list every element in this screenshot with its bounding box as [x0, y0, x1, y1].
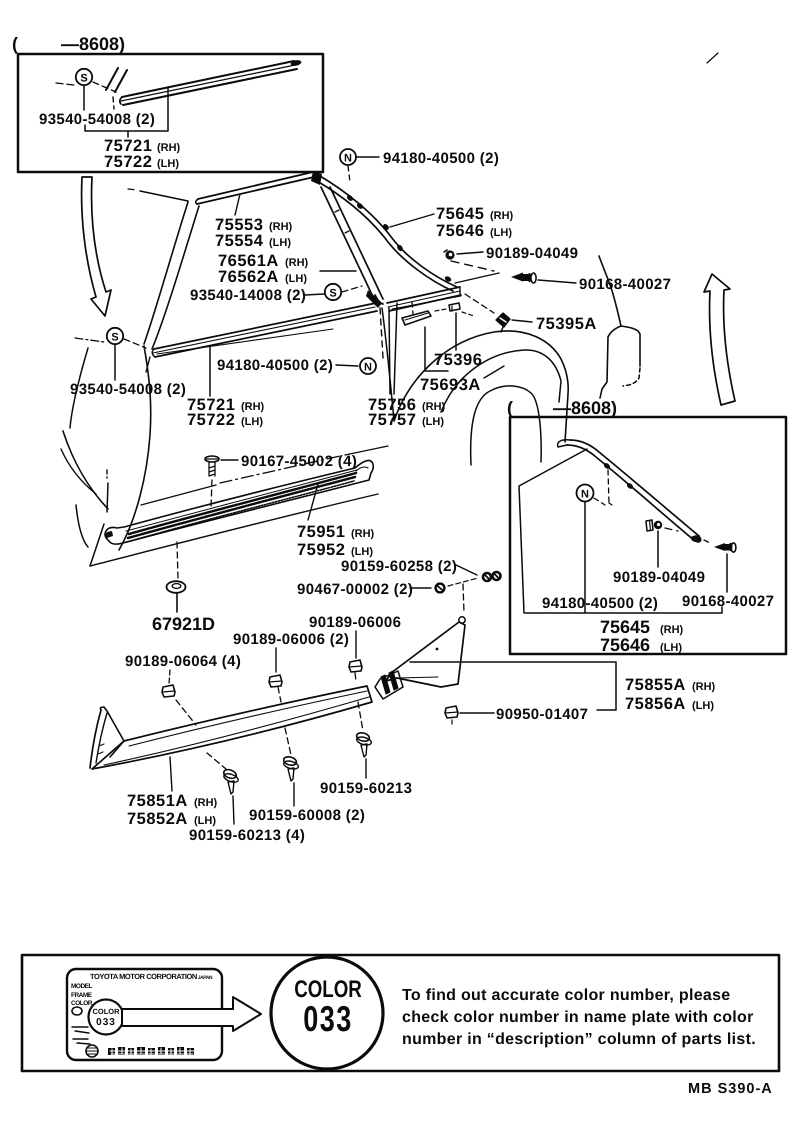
svg-text:(RH): (RH) — [660, 624, 684, 636]
svg-text:(LH): (LH) — [660, 642, 682, 654]
svg-text:(LH): (LH) — [692, 700, 714, 712]
svg-text:033: 033 — [303, 998, 353, 1039]
svg-text:75855A: 75855A — [625, 676, 686, 694]
svg-text:94180-40500 (2): 94180-40500 (2) — [542, 595, 658, 612]
svg-text:S: S — [80, 73, 87, 85]
svg-text:N: N — [344, 153, 352, 165]
svg-text:(RH): (RH) — [241, 401, 265, 413]
svg-text:(LH): (LH) — [490, 227, 512, 239]
svg-text:(RH): (RH) — [285, 257, 309, 269]
svg-text:90467-00002 (2): 90467-00002 (2) — [297, 581, 413, 598]
svg-text:N: N — [364, 362, 372, 374]
svg-text:(RH): (RH) — [157, 142, 181, 154]
svg-text:90167-45002 (4): 90167-45002 (4) — [241, 453, 357, 470]
svg-text:COLOR: COLOR — [71, 1000, 93, 1007]
svg-text:(RH): (RH) — [490, 210, 514, 222]
svg-text:S: S — [111, 332, 118, 344]
svg-text:MB S390-A: MB S390-A — [688, 1081, 773, 1097]
svg-text:75645: 75645 — [600, 617, 650, 637]
svg-text:93540-54008 (2): 93540-54008 (2) — [70, 381, 186, 398]
svg-text:(RH): (RH) — [194, 797, 218, 809]
svg-text:90159-60213 (4): 90159-60213 (4) — [189, 827, 305, 844]
svg-text:S: S — [329, 288, 336, 300]
svg-text:75851A: 75851A — [127, 792, 188, 810]
svg-text:75646: 75646 — [436, 222, 484, 240]
svg-text:90168-40027: 90168-40027 — [579, 276, 671, 293]
svg-text:90159-60258 (2): 90159-60258 (2) — [341, 558, 457, 575]
svg-text:75722: 75722 — [187, 411, 235, 429]
svg-text:(RH): (RH) — [269, 221, 293, 233]
svg-text:75856A: 75856A — [625, 695, 686, 713]
svg-text:75693A: 75693A — [420, 376, 481, 394]
svg-text:94180-40500 (2): 94180-40500 (2) — [383, 150, 499, 167]
svg-text:033: 033 — [96, 1017, 116, 1028]
svg-text:75951: 75951 — [297, 523, 345, 541]
svg-text:—8608): —8608) — [61, 34, 125, 54]
svg-text:75852A: 75852A — [127, 810, 188, 828]
svg-text:number in “description” column: number in “description” column of parts … — [402, 1031, 756, 1048]
svg-text:(LH): (LH) — [422, 416, 444, 428]
svg-text:75757: 75757 — [368, 411, 416, 429]
svg-text:(RH): (RH) — [351, 528, 375, 540]
svg-text:(LH): (LH) — [157, 158, 179, 170]
svg-text:N: N — [581, 489, 589, 501]
svg-text:(LH): (LH) — [194, 815, 216, 827]
svg-text:90189-04049: 90189-04049 — [613, 569, 705, 586]
svg-text:90159-60008 (2): 90159-60008 (2) — [249, 807, 365, 824]
svg-text:90159-60213: 90159-60213 — [320, 780, 412, 797]
svg-text:93540-54008 (2): 93540-54008 (2) — [39, 111, 155, 128]
svg-text:FRAME: FRAME — [71, 992, 93, 999]
svg-text:90950-01407: 90950-01407 — [496, 706, 588, 723]
svg-text:67921D: 67921D — [152, 614, 215, 634]
svg-text:(LH): (LH) — [351, 546, 373, 558]
svg-text:(: ( — [12, 34, 18, 54]
svg-text:75645: 75645 — [436, 205, 484, 223]
svg-text:(LH): (LH) — [269, 237, 291, 249]
svg-text:90189-06006 (2): 90189-06006 (2) — [233, 631, 349, 648]
svg-text:(: ( — [507, 398, 513, 418]
svg-text:90189-04049: 90189-04049 — [486, 245, 578, 262]
svg-text:COLOR: COLOR — [92, 1007, 120, 1016]
svg-text:MODEL: MODEL — [71, 983, 93, 990]
svg-text:(LH): (LH) — [285, 273, 307, 285]
svg-text:75952: 75952 — [297, 541, 345, 559]
svg-text:75722: 75722 — [104, 153, 152, 171]
svg-text:(RH): (RH) — [692, 681, 716, 693]
svg-text:90189-06064 (4): 90189-06064 (4) — [125, 653, 241, 670]
svg-text:check color number in name pla: check color number in name plate with co… — [402, 1009, 754, 1026]
svg-text:To find out accurate color num: To find out accurate color number, pleas… — [402, 987, 731, 1004]
svg-text:93540-14008 (2): 93540-14008 (2) — [190, 287, 306, 304]
svg-text:90168-40027: 90168-40027 — [682, 593, 774, 610]
svg-text:75554: 75554 — [215, 232, 264, 250]
svg-text:TOYOTA MOTOR CORPORATION JAPAN: TOYOTA MOTOR CORPORATION JAPAN — [90, 972, 213, 981]
svg-text:—8608): —8608) — [553, 398, 617, 418]
svg-text:76562A: 76562A — [218, 268, 279, 286]
svg-text:75395A: 75395A — [536, 315, 597, 333]
svg-text:94180-40500 (2): 94180-40500 (2) — [217, 357, 333, 374]
svg-text:75396: 75396 — [434, 351, 482, 369]
svg-text:(LH): (LH) — [241, 416, 263, 428]
svg-text:90189-06006: 90189-06006 — [309, 614, 401, 631]
svg-text:75646: 75646 — [600, 635, 650, 655]
